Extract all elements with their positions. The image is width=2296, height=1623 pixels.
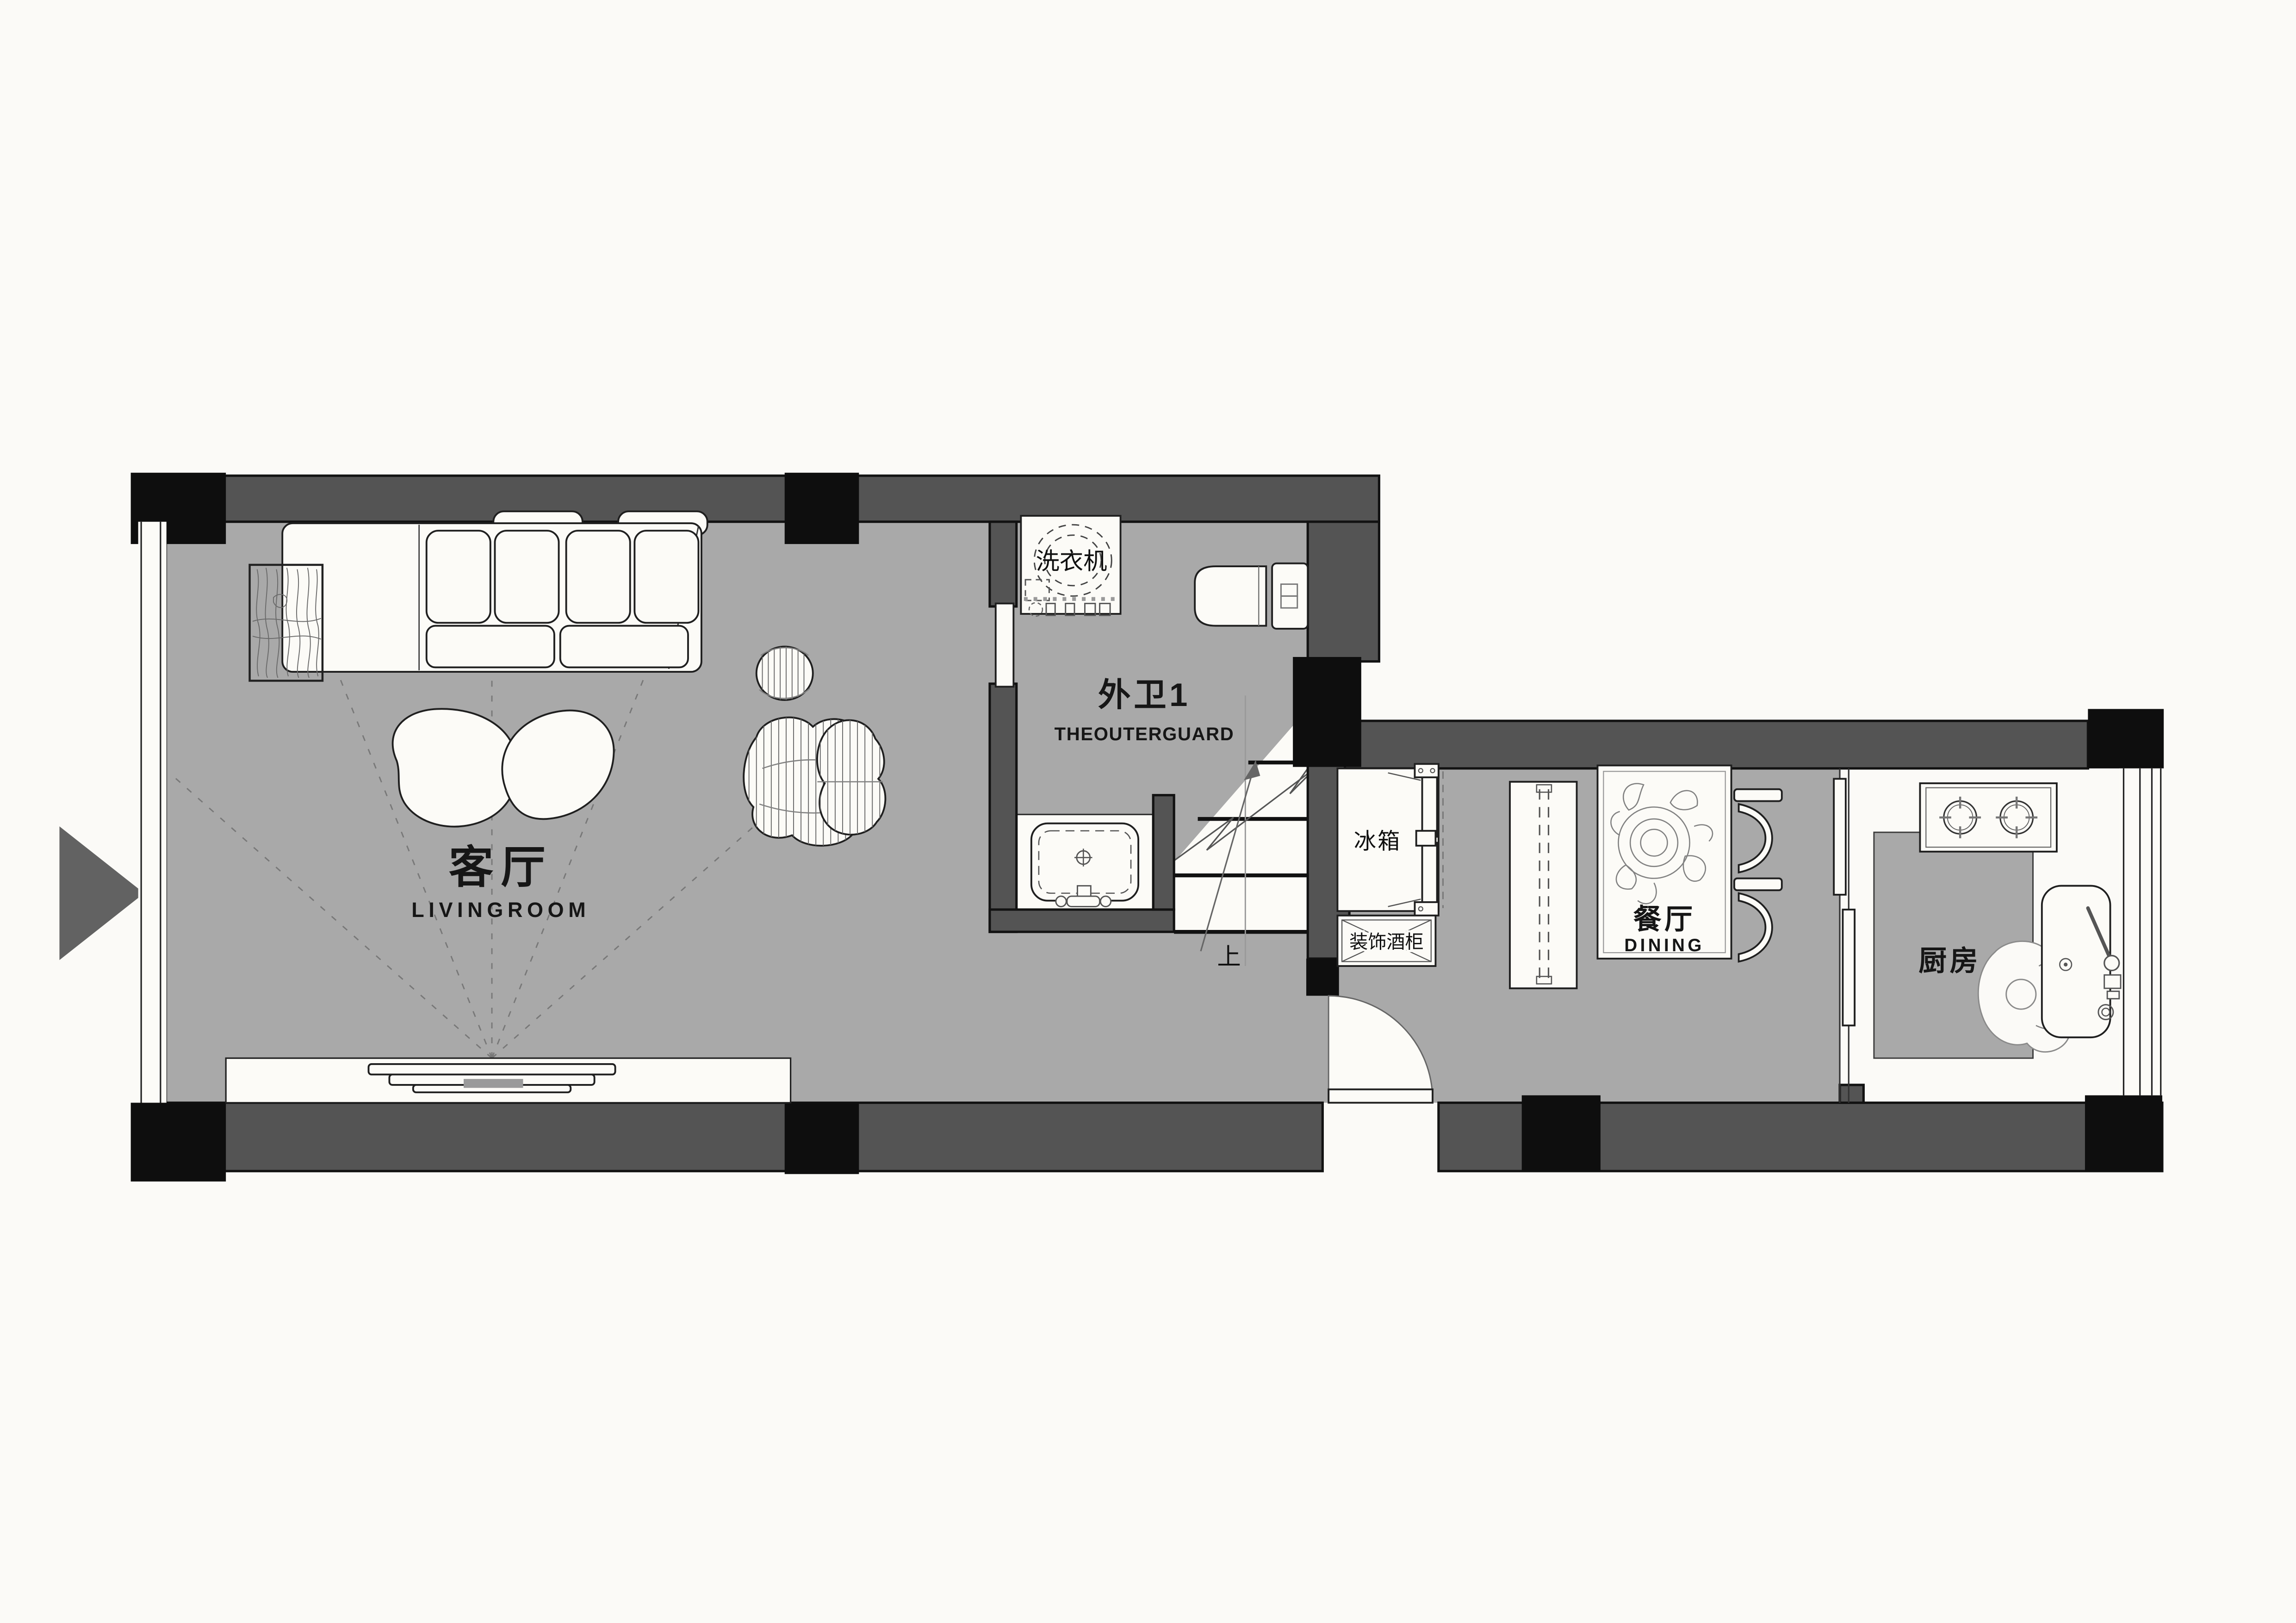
- living-label-en: LIVINGROOM: [411, 898, 590, 922]
- dining-label-en: DINING: [1624, 935, 1704, 955]
- wine-cabinet-label: 装饰酒柜: [1349, 931, 1424, 953]
- kitchen-label-zh: 厨房: [1918, 945, 1981, 977]
- shower-niche: [1017, 814, 1153, 910]
- striped-armchair: [744, 711, 885, 850]
- stove: [1920, 783, 2056, 852]
- floor-plan: 上: [0, 0, 2296, 1623]
- left-window: [138, 522, 167, 1103]
- door-leaf: [1328, 1090, 1433, 1103]
- fridge: 冰箱: [1337, 764, 1443, 916]
- stairs-up-label: 上: [1217, 943, 1241, 971]
- dining-label-zh: 餐厅: [1633, 904, 1696, 935]
- pocket-door: [996, 603, 1014, 687]
- washing-machine: 洗衣机: [1021, 516, 1120, 616]
- washer-label: 洗衣机: [1036, 548, 1107, 576]
- outerguard-label-zh: 外卫1: [1098, 676, 1191, 713]
- tv: [368, 1064, 615, 1074]
- toilet: [1195, 564, 1308, 629]
- sliding-door-leaf: [1834, 779, 1846, 895]
- kitchen-sink: [2042, 886, 2121, 1038]
- living-label-zh: 客厅: [449, 843, 553, 892]
- outerguard-label-en: THEOUTERGUARD: [1055, 724, 1235, 744]
- fridge-label: 冰箱: [1354, 828, 1402, 854]
- wine-cabinet: 装饰酒柜: [1337, 916, 1435, 966]
- kitchen-window: [2119, 768, 2164, 1096]
- sofa: [282, 511, 707, 672]
- dining-table: 餐厅 DINING: [1598, 765, 1731, 959]
- tv-console: [226, 1058, 790, 1103]
- dining-sideboard: [1510, 782, 1577, 988]
- sliding-door-leaf: [1843, 910, 1855, 1026]
